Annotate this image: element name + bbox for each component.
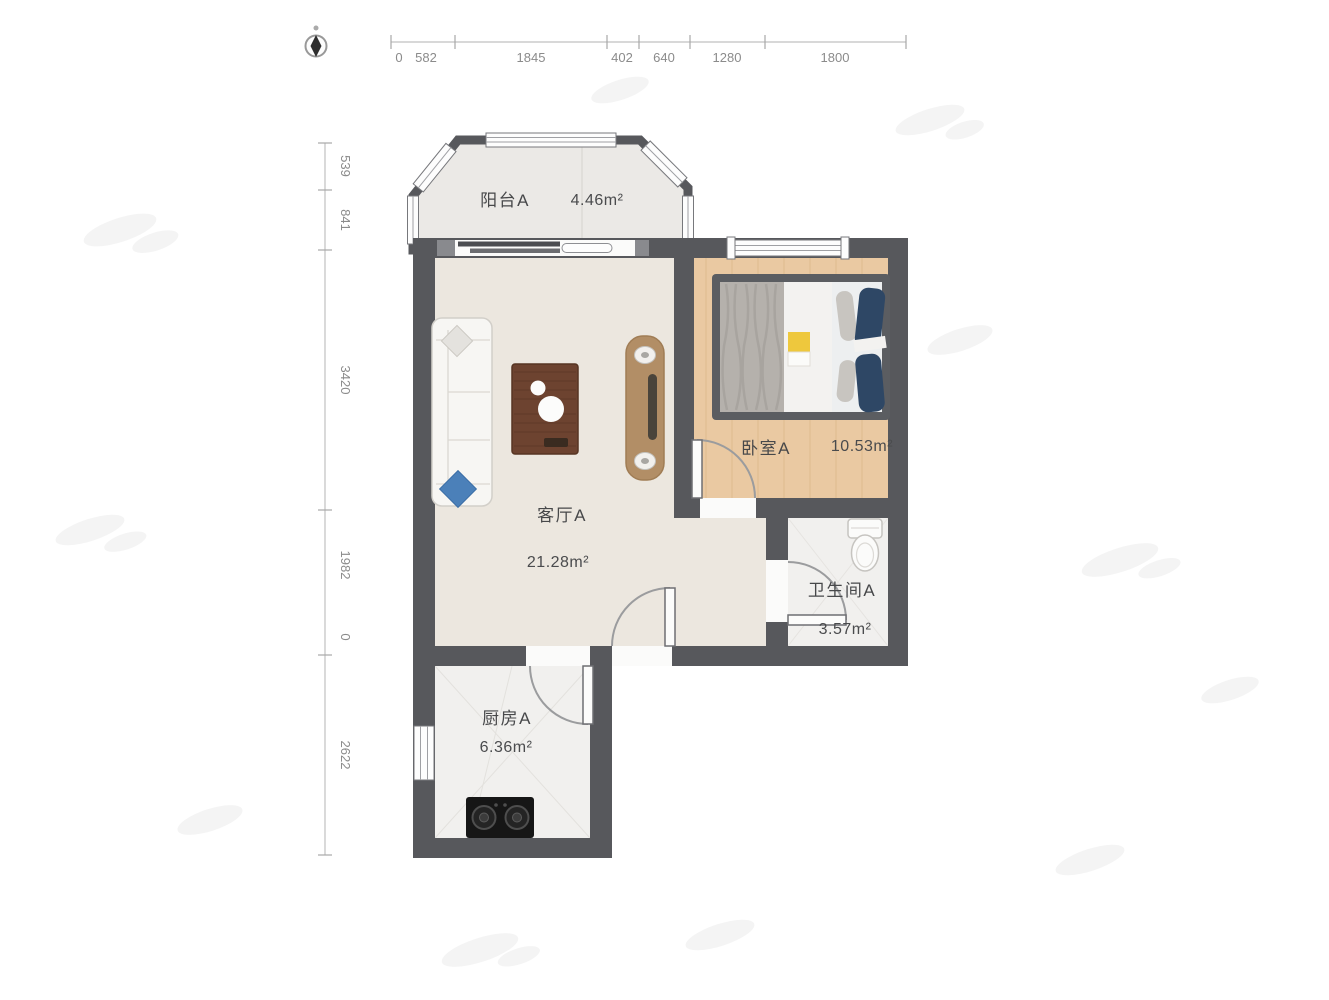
ruler-top: 0 582 1845 402 640 1280 1800 — [391, 35, 906, 65]
balcony-room — [408, 133, 694, 250]
bedroom-door-opening — [700, 498, 756, 518]
living-area-label: 21.28m² — [527, 554, 589, 571]
dim-top-1280: 1280 — [713, 50, 742, 65]
wall-divider-living-bedroom — [674, 258, 694, 508]
sofa — [432, 318, 492, 507]
dim-left-841: 841 — [338, 209, 353, 231]
bed-pillow-navy-2 — [855, 353, 886, 413]
living-room-floor-hall — [674, 518, 766, 646]
balcony-name-label: 阳台A — [480, 191, 530, 210]
tv-stand — [626, 336, 664, 480]
dim-left-0: 0 — [338, 633, 353, 640]
dim-top-1845: 1845 — [517, 50, 546, 65]
wall-kitchen-bottom — [413, 838, 612, 858]
floorplan-canvas: 0 582 1845 402 640 1280 1800 539 841 342… — [0, 0, 1329, 1000]
kitchen-area-label: 6.36m² — [480, 739, 533, 756]
dim-top-402: 402 — [611, 50, 633, 65]
bedroom-window — [727, 237, 849, 259]
living-name-label: 客厅A — [537, 506, 587, 525]
bathroom-door-opening — [766, 560, 788, 622]
table-plate-small — [531, 381, 546, 396]
dim-left-539: 539 — [338, 155, 353, 177]
bedroom-area-label: 10.53m² — [831, 438, 893, 455]
dim-top-1800: 1800 — [821, 50, 850, 65]
dim-top-0: 0 — [395, 50, 402, 65]
entrance-door-opening — [612, 646, 672, 666]
balcony-right-side-window — [683, 196, 694, 244]
ruler-left: 539 841 3420 1982 0 2622 — [318, 143, 353, 855]
stove — [466, 797, 534, 838]
balcony-top-window — [486, 133, 616, 147]
dim-left-3420: 3420 — [338, 366, 353, 395]
tv-stand-slot — [648, 374, 657, 440]
compass-north-icon — [306, 26, 327, 58]
table-plate-large — [538, 396, 564, 422]
kitchen-door-opening — [526, 646, 590, 666]
dim-top-582: 582 — [415, 50, 437, 65]
dim-left-1982: 1982 — [338, 551, 353, 580]
bed-tray-yellow — [788, 332, 810, 353]
balcony-left-side-window — [408, 196, 419, 244]
kitchen-name-label: 厨房A — [482, 709, 532, 728]
dim-top-640: 640 — [653, 50, 675, 65]
dim-left-2622: 2622 — [338, 741, 353, 770]
balcony-area-label: 4.46m² — [571, 192, 624, 209]
coffee-table — [512, 364, 578, 454]
bed — [712, 274, 890, 420]
bathroom-name-label: 卫生间A — [808, 581, 876, 600]
toilet — [848, 519, 882, 571]
bathroom-area-label: 3.57m² — [819, 621, 872, 638]
kitchen-window — [414, 726, 434, 780]
table-remote — [544, 438, 568, 447]
bedroom-name-label: 卧室A — [741, 439, 791, 458]
